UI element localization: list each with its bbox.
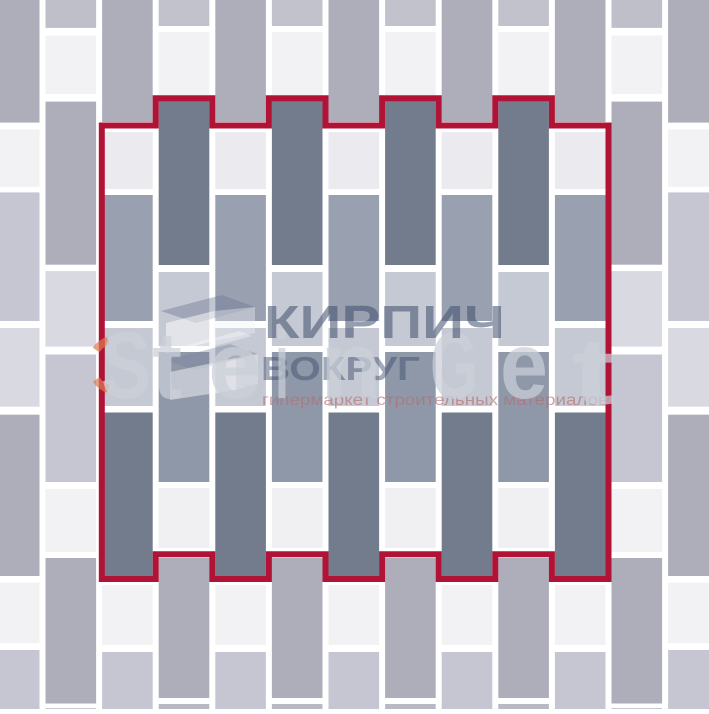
svg-text:e: e	[208, 313, 262, 419]
svg-text:e: e	[500, 313, 548, 419]
svg-text:S: S	[101, 313, 151, 419]
svg-text:t: t	[572, 319, 615, 425]
svg-text:t: t	[152, 313, 182, 419]
svg-text:КИРПИЧ: КИРПИЧ	[264, 296, 505, 348]
